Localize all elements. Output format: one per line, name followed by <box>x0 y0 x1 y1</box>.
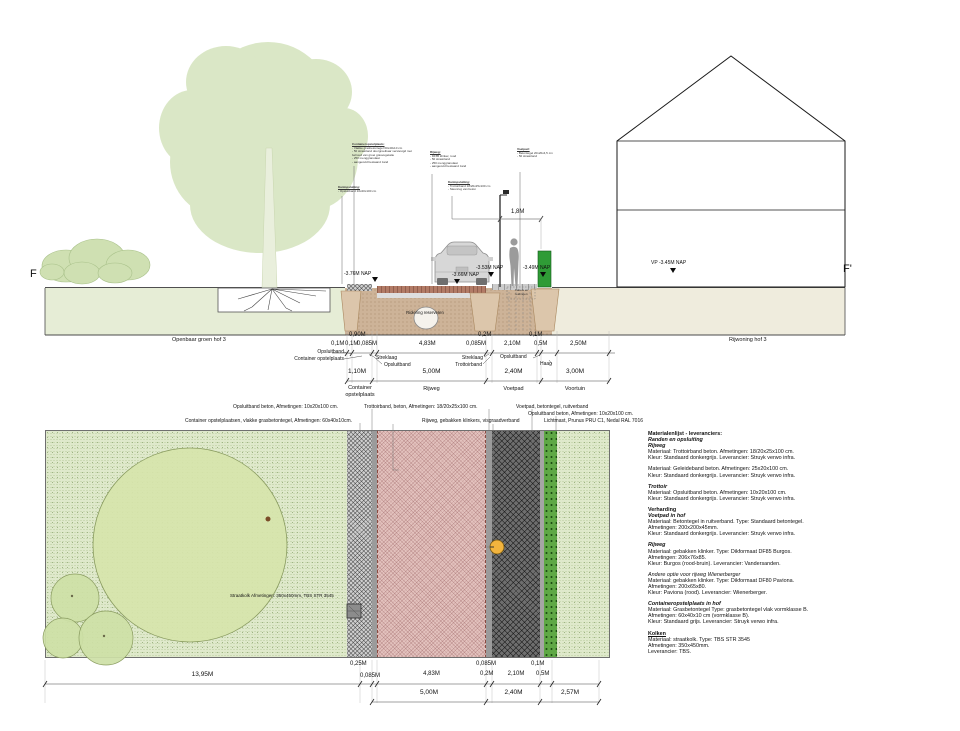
lamp-post <box>500 190 509 287</box>
tree-crown <box>159 42 368 253</box>
person-silhouette <box>509 238 518 286</box>
tree-circle-plan <box>93 448 287 642</box>
bushes <box>40 239 150 284</box>
sewer-label: Riolering reserveren <box>404 310 446 315</box>
street-gully <box>347 604 361 618</box>
car-silhouette <box>431 242 493 285</box>
callout-line: - aangevuld bestaand zand <box>352 161 414 165</box>
leader-label: Container opstelplaats <box>276 356 344 362</box>
dim-label: 2,40M <box>486 689 541 696</box>
lamp-dimension <box>498 216 543 249</box>
dim-label: 0,1M <box>331 341 344 348</box>
callout-line: - aangevuld bestaand zand <box>430 165 485 169</box>
dim-label: 0,085M <box>357 341 377 348</box>
callout-rijweg: Rijweg: - DF85 klinker, rood - 50 straat… <box>430 151 485 169</box>
dim-label: 2,50M <box>570 341 587 348</box>
gully-label: Straatkolk Afmetingen: 350x450mm, TBS ST… <box>230 592 334 599</box>
materials-line: Leverancier: TBS. <box>648 649 853 655</box>
root-ball <box>218 288 330 312</box>
shrub-dot-2 <box>103 635 105 637</box>
zone-label: Rijweg <box>377 386 486 393</box>
dim-label: 3,00M <box>541 368 609 375</box>
dim-label: 13,95M <box>45 671 360 678</box>
dim-label: 0,085M <box>466 341 486 348</box>
dim-label: 4,83M <box>377 671 486 678</box>
area-label-right: Rijwoning hof 3 <box>729 337 767 344</box>
callout-container: Containeropstelplaats: - Vlakke grasbeto… <box>352 143 414 165</box>
leader-label: Opsluitband <box>500 354 527 360</box>
dim-label: 5,00M <box>372 689 486 696</box>
dim-label: 2,57M <box>541 689 599 696</box>
area-label-left: Openbaar groen hof 3 <box>172 337 226 344</box>
dim-label: 1,10M <box>348 368 366 375</box>
cables-label: Kabels en leidingen <box>509 289 534 296</box>
zone-label: Voortuin <box>541 386 609 393</box>
leader-label: Opsluitband <box>298 349 344 355</box>
plan-annotation: Lichtmast, Prunus PRU C1, Nedal RAL 7016 <box>544 418 643 424</box>
drawing-sheet: F F' -3.76M NAP -3.66M NAP -3.53M NAP -3… <box>0 0 960 731</box>
dim-label: 0,25M <box>350 661 367 668</box>
dim-label: 2,40M <box>486 368 541 375</box>
leader-label: Streklaag <box>440 355 483 361</box>
callout-line: - Opsluitband 10x20x100 cm <box>338 190 393 194</box>
callout-line: - 50 straatzand <box>517 155 572 159</box>
dim-label: 4,83M <box>419 341 436 348</box>
dim-label: 2,10M <box>492 671 540 678</box>
dim-label: 0,90M <box>349 332 366 339</box>
house-outline <box>617 56 845 287</box>
materials-list: Materialenlijst - leveranciers: Randen e… <box>648 431 853 655</box>
plan-annotation: Trottoirband, beton, Afmetingen: 18/20x2… <box>364 404 478 410</box>
zone-label: Voetpad <box>486 386 541 393</box>
dim-label: 0,085M <box>476 661 496 668</box>
nap-label: -3.66M NAP <box>452 272 479 278</box>
callout-kantopsluiting-right: Kantopsluiting: - Trottoirband 18/20x25x… <box>448 181 510 192</box>
plan-annotation: Opsluitband beton, Afmetingen: 10x20x100… <box>528 411 633 417</box>
plan-annotation: Container opstelplaatsen, vlakke grasbet… <box>185 418 352 424</box>
dim-label: 5,00M <box>377 368 486 375</box>
plan-dimension-lines <box>43 660 601 705</box>
dim-label: 0,5M <box>536 671 549 678</box>
plan-annotation: Voetpad, betontegel, ruitverband <box>516 404 588 410</box>
leader-label: Streklaag <box>376 355 397 361</box>
dim-label: 0,5M <box>534 341 547 348</box>
dim-label: 0,2M <box>478 332 491 339</box>
plan-annotation: Rijweg, gebakken klinkers, visgraadverba… <box>422 418 520 424</box>
light-mast-circle <box>490 540 504 554</box>
nap-label-vp: VP -3.45M NAP <box>651 260 686 266</box>
nap-label: -3.49M NAP <box>523 265 550 271</box>
dim-label: 0,1M <box>531 661 544 668</box>
lamp-dimension-label: 1,8M <box>511 209 524 216</box>
leader-label: Haag <box>540 361 552 367</box>
shrub-dot-1 <box>71 595 73 597</box>
dim-label: 0,1M <box>529 332 542 339</box>
callout-line: - Steunrug van beton <box>448 188 510 192</box>
section-marker-right: F' <box>843 263 852 275</box>
tree-trunk-dot <box>266 517 271 522</box>
nap-label: -3.53M NAP <box>476 265 503 271</box>
dim-label: 2,10M <box>504 341 521 348</box>
plan-annotation: Opsluitband beton, Afmetingen: 10x20x100… <box>233 404 338 410</box>
plan-annotation-leaders <box>352 409 556 605</box>
nap-label: -3.76M NAP <box>344 271 371 277</box>
callout-voetpad: Voetpad: - Betontegel 20x20x4,5 cm - 50 … <box>517 148 572 159</box>
callout-kantopsluiting-left: Kantopsluiting: - Opsluitband 10x20x100 … <box>338 186 393 193</box>
section-marker-left: F <box>30 268 37 280</box>
